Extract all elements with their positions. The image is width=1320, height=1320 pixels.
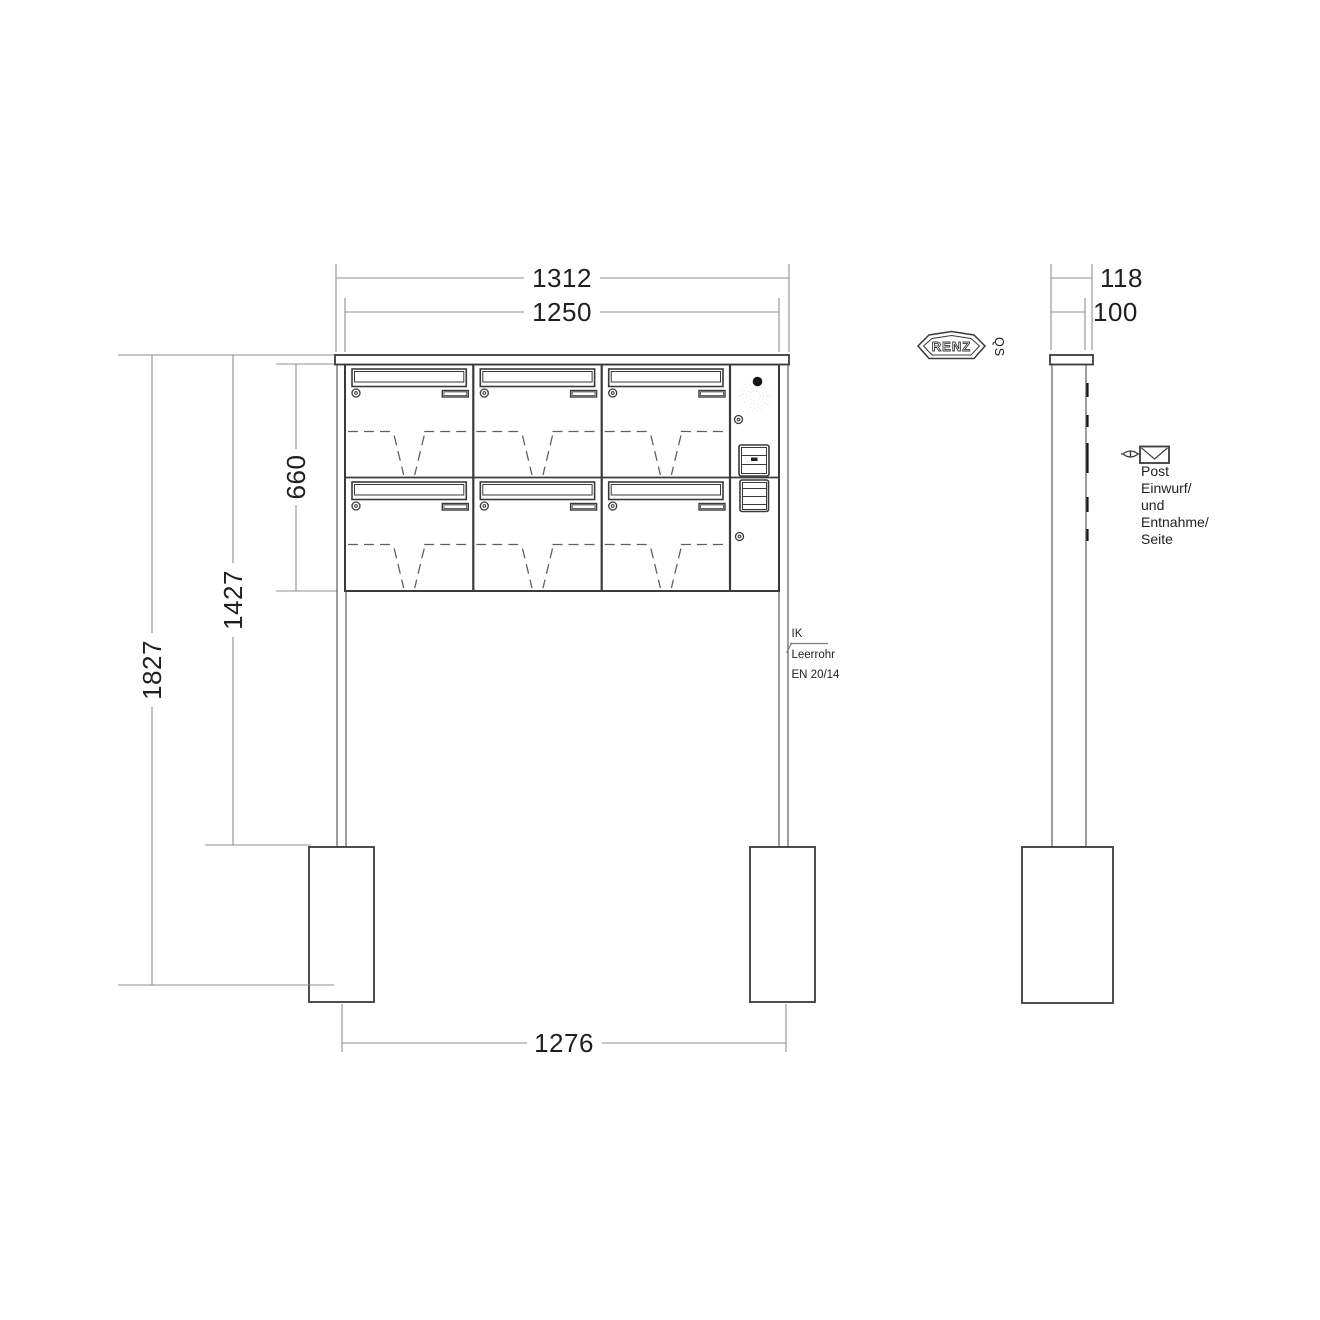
- side-view: [1022, 355, 1113, 1003]
- post-note-line-4: Entnahme/: [1141, 514, 1209, 530]
- renz-logo: RENZ: [918, 332, 985, 359]
- dim-body-height-label: 660: [281, 455, 311, 500]
- front-view: [118, 355, 815, 1002]
- conduit-line-3: EN 20/14: [792, 669, 841, 681]
- post-note-line-5: Seite: [1141, 531, 1173, 547]
- post-note-line-1: Post: [1141, 463, 1169, 479]
- conduit-line-1: IK: [792, 628, 803, 640]
- camera-dot-icon: [753, 377, 763, 387]
- conduit-line-2: Leerrohr: [792, 649, 836, 661]
- bell-panel-lower: [740, 480, 769, 512]
- side-roof-plate: [1050, 355, 1093, 365]
- dim-body-height: 660: [276, 364, 341, 591]
- dim-overall-width-label: 1312: [532, 263, 592, 293]
- anchor-block-left: [309, 847, 374, 1002]
- bell-label: [751, 458, 758, 462]
- conduit-note: IK Leerrohr EN 20/14: [787, 628, 841, 681]
- post-access-note: Post Einwurf/ und Entnahme/ Seite: [1121, 447, 1209, 548]
- roof-plate: [335, 355, 789, 365]
- side-anchor-block: [1022, 847, 1113, 1003]
- dim-total-height-label: 1827: [137, 640, 167, 700]
- dim-clearance-height: 1427: [205, 355, 311, 845]
- eye-icon: [1121, 451, 1140, 458]
- envelope-icon: [1140, 447, 1169, 464]
- dim-roof-depth-label: 118: [1100, 263, 1143, 293]
- qs-label: QS: [992, 337, 1006, 357]
- bell-panel-upper: [739, 445, 769, 476]
- technical-drawing-page: 1827 1427 660 1312 1250 1276: [0, 0, 1320, 1320]
- dim-total-height: 1827: [137, 355, 167, 985]
- dim-body-width-label: 1250: [532, 297, 592, 327]
- dim-post-depth-label: 100: [1093, 297, 1138, 327]
- post-note-line-2: Einwurf/: [1141, 480, 1192, 496]
- dim-body-width: 1250: [345, 297, 779, 352]
- letterbox-dimension-drawing: 1827 1427 660 1312 1250 1276: [0, 0, 1320, 1320]
- stand-post-right: [779, 364, 788, 847]
- dim-anchor-spacing: 1276: [342, 1004, 786, 1058]
- dim-clearance-height-label: 1427: [218, 570, 248, 630]
- anchor-block-right: [750, 847, 815, 1002]
- dim-post-depth: 100: [1051, 297, 1138, 350]
- renz-logo-text: RENZ: [932, 339, 971, 354]
- post-note-line-3: und: [1141, 497, 1164, 513]
- dim-anchor-spacing-label: 1276: [534, 1028, 594, 1058]
- side-post: [1052, 364, 1086, 847]
